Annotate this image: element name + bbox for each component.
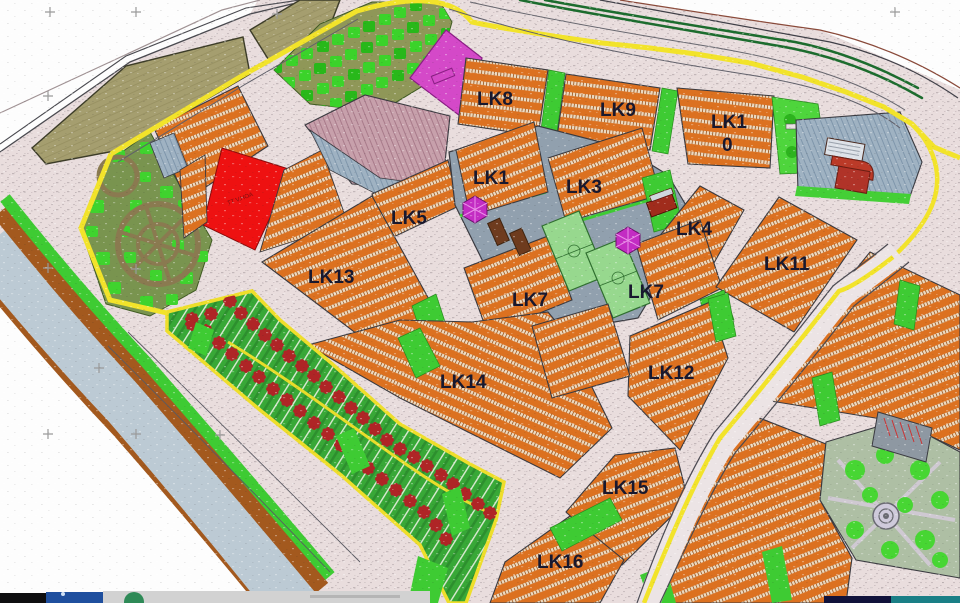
svg-text:LK5: LK5	[391, 208, 427, 229]
svg-text:LK13: LK13	[308, 267, 354, 288]
svg-text:LK7: LK7	[628, 282, 664, 303]
svg-text:LK1: LK1	[711, 112, 747, 133]
svg-text:LK7: LK7	[512, 290, 548, 311]
svg-text:LK9: LK9	[600, 100, 636, 121]
svg-text:LK14: LK14	[440, 372, 487, 393]
svg-text:0: 0	[722, 135, 733, 156]
svg-text:LK1: LK1	[473, 168, 509, 189]
svg-text:LK3: LK3	[566, 177, 602, 198]
svg-text:LK4: LK4	[676, 219, 712, 240]
svg-text:LK15: LK15	[602, 478, 649, 499]
svg-text:LK8: LK8	[477, 89, 513, 110]
svg-text:LK16: LK16	[537, 552, 583, 573]
svg-text:LK12: LK12	[648, 363, 694, 384]
svg-text:LK11: LK11	[764, 254, 810, 275]
